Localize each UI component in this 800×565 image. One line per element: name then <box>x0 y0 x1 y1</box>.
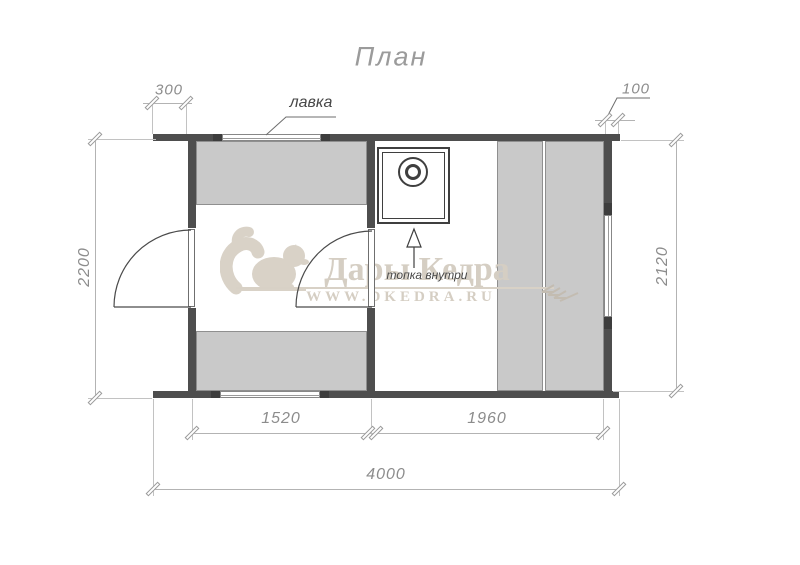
entrance-door-swing-arc <box>114 230 191 307</box>
ext-line <box>186 103 187 134</box>
dim-4000-value: 4000 <box>366 466 406 484</box>
dim-2120-value: 2120 <box>654 246 672 286</box>
bench-leader-line <box>266 117 336 135</box>
dim-1520-1960-line <box>192 433 603 434</box>
stove-arrow-head <box>407 229 421 247</box>
bench-label: лавка <box>290 94 333 112</box>
dim-1520-value: 1520 <box>261 410 301 428</box>
ext-line <box>619 399 620 496</box>
ext-line <box>88 139 156 140</box>
interior-door-swing-arc <box>296 231 372 307</box>
ext-line <box>152 103 153 134</box>
dim-100-leader-line <box>606 98 650 119</box>
stove-note-label: топка внутри <box>387 268 468 282</box>
dim-2200-value: 2200 <box>76 247 94 287</box>
dim-1960-value: 1960 <box>467 410 507 428</box>
ext-line <box>153 399 154 496</box>
dim-2200-line <box>95 139 96 398</box>
floor-plan-drawing: План Дары Кедра WWW.DKEDRA.RU <box>0 0 800 565</box>
dim-2120-line <box>676 140 677 391</box>
dim-300-value: 300 <box>155 82 183 99</box>
dim-100-value: 100 <box>622 81 650 98</box>
dim-4000-line <box>153 489 619 490</box>
